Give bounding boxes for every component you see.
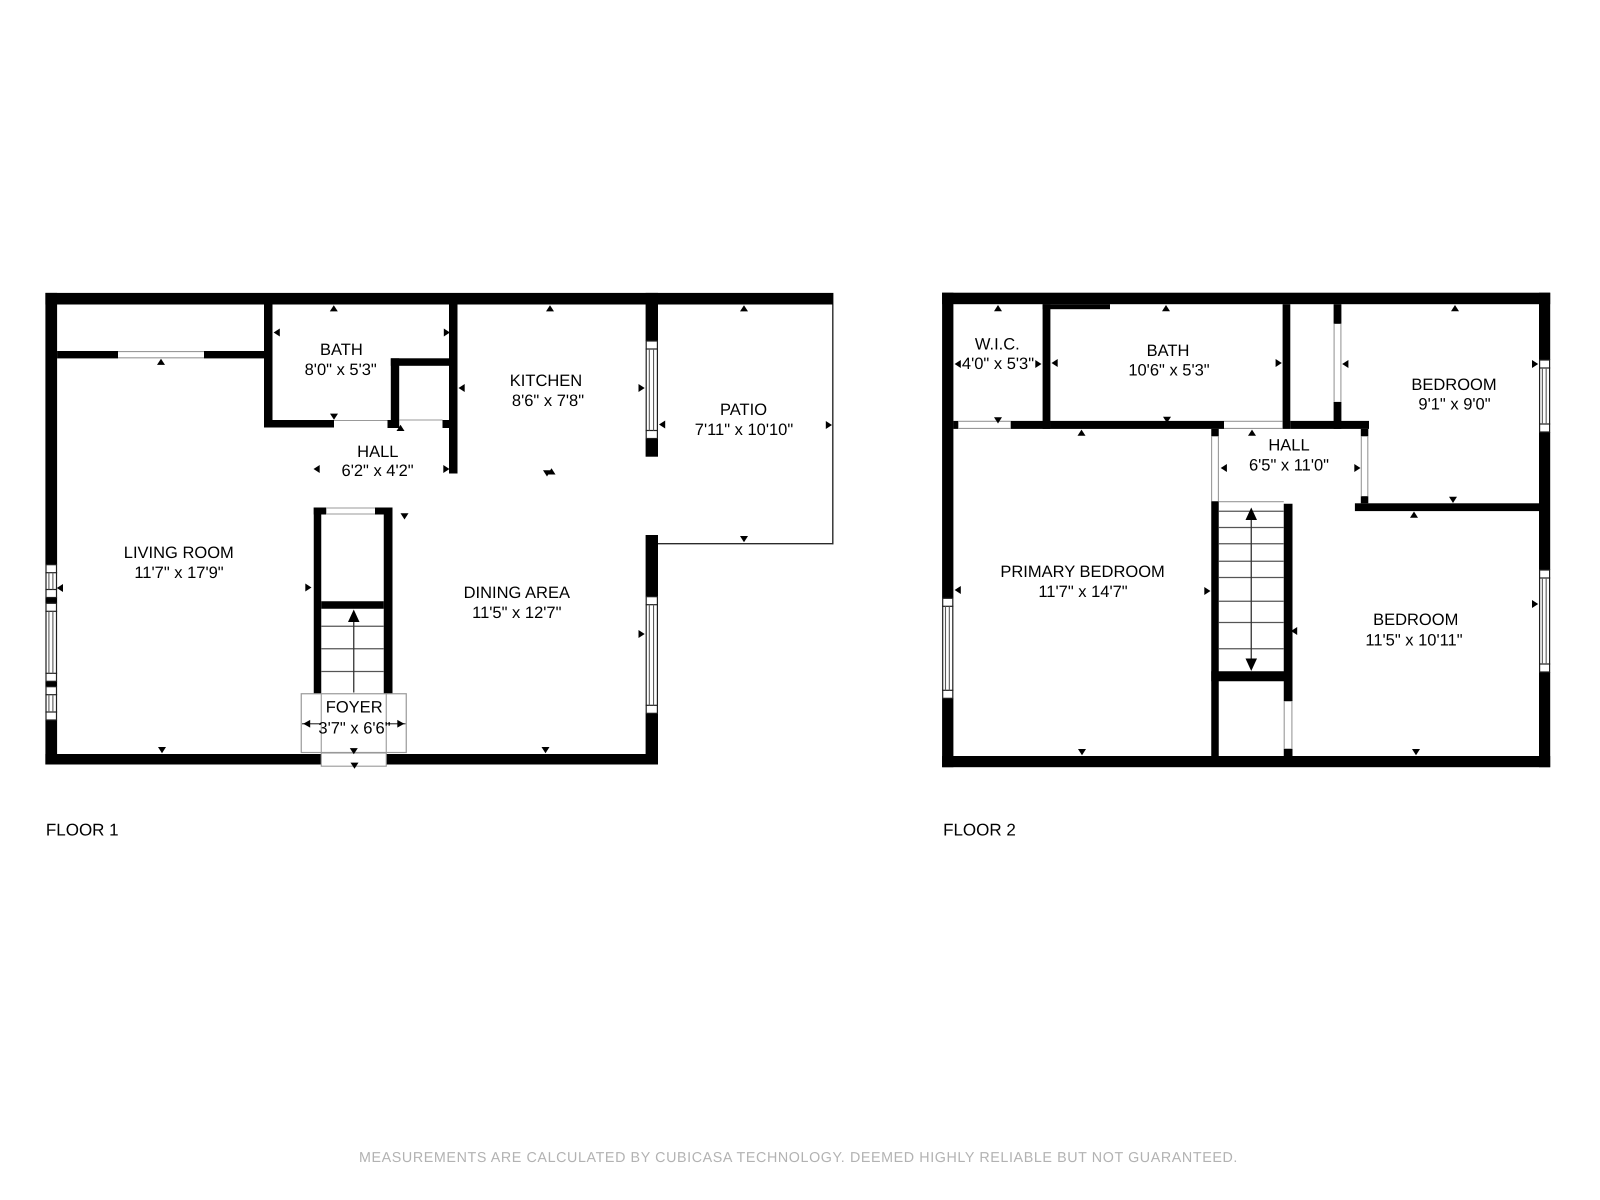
svg-text:PATIO: PATIO xyxy=(720,401,767,419)
svg-text:BEDROOM: BEDROOM xyxy=(1411,376,1496,394)
svg-text:8'0" x 5'3": 8'0" x 5'3" xyxy=(305,361,377,379)
svg-text:W.I.C.: W.I.C. xyxy=(975,335,1020,353)
svg-text:HALL: HALL xyxy=(1268,437,1309,455)
svg-text:LIVING ROOM: LIVING ROOM xyxy=(124,544,234,562)
svg-text:3'7" x 6'6": 3'7" x 6'6" xyxy=(318,719,390,737)
svg-text:DINING AREA: DINING AREA xyxy=(464,584,570,602)
svg-text:FOYER: FOYER xyxy=(326,699,383,717)
svg-text:FLOOR 2: FLOOR 2 xyxy=(943,821,1016,840)
svg-text:8'6" x 7'8": 8'6" x 7'8" xyxy=(512,392,584,410)
svg-text:6'2" x 4'2": 6'2" x 4'2" xyxy=(342,462,414,480)
svg-text:BATH: BATH xyxy=(320,341,363,359)
svg-text:MEASUREMENTS ARE CALCULATED BY: MEASUREMENTS ARE CALCULATED BY CUBICASA … xyxy=(359,1150,1238,1166)
svg-text:7'11" x 10'10": 7'11" x 10'10" xyxy=(695,421,794,439)
svg-text:10'6" x 5'3": 10'6" x 5'3" xyxy=(1128,362,1209,380)
svg-text:11'7" x 17'9": 11'7" x 17'9" xyxy=(134,564,223,582)
svg-text:9'1" x 9'0": 9'1" x 9'0" xyxy=(1418,396,1490,414)
svg-text:BEDROOM: BEDROOM xyxy=(1373,611,1458,629)
svg-text:11'5" x 12'7": 11'5" x 12'7" xyxy=(472,604,561,622)
svg-text:HALL: HALL xyxy=(357,443,398,461)
svg-text:PRIMARY BEDROOM: PRIMARY BEDROOM xyxy=(1000,563,1164,581)
svg-text:11'5" x 10'11": 11'5" x 10'11" xyxy=(1365,632,1462,650)
svg-text:FLOOR 1: FLOOR 1 xyxy=(46,821,119,840)
svg-text:11'7" x 14'7": 11'7" x 14'7" xyxy=(1038,583,1127,601)
svg-text:4'0" x 5'3": 4'0" x 5'3" xyxy=(962,355,1034,373)
svg-text:KITCHEN: KITCHEN xyxy=(510,372,582,390)
svg-text:BATH: BATH xyxy=(1147,342,1190,360)
svg-text:6'5" x 11'0": 6'5" x 11'0" xyxy=(1249,456,1329,474)
